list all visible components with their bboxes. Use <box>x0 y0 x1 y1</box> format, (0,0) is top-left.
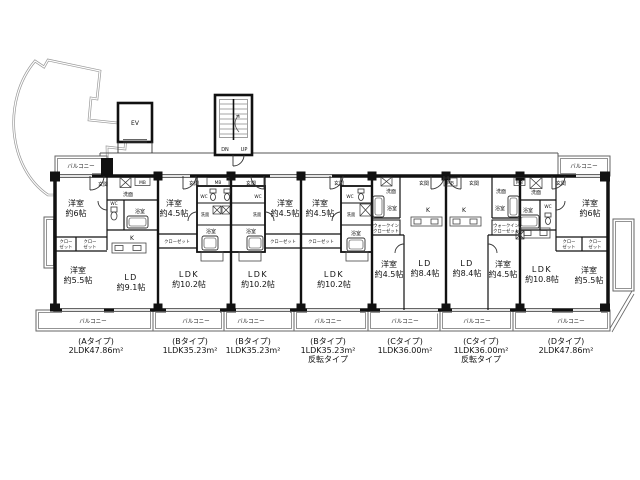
entrance-label: 玄関 <box>246 180 256 187</box>
closet-label: クロー <box>563 239 576 245</box>
closet-label: ゼット <box>60 244 73 251</box>
type-name: (Cタイプ) <box>463 337 499 346</box>
wic-label: ウォークイン <box>493 222 519 229</box>
room-label: 約4.5帖 <box>271 208 300 218</box>
closet-label: クロー <box>589 239 602 245</box>
room-label: LDK <box>248 270 268 279</box>
type-name: (Aタイプ) <box>78 337 114 346</box>
room-label: 約4.5帖 <box>306 208 335 218</box>
room-label: 洋室 <box>68 198 84 208</box>
type-area: 1LDK36.00m² <box>454 346 509 355</box>
wc-label: WC <box>346 194 353 200</box>
room-label: LD <box>418 259 432 268</box>
entrance-label: 玄関 <box>419 180 429 187</box>
closet-label: ゼット <box>84 244 97 251</box>
room-label: 約5.5帖 <box>64 275 93 285</box>
wash-label: 洗面 <box>347 211 356 218</box>
room-label: 洋室 <box>277 198 293 208</box>
entrance-label: 玄関 <box>469 180 479 187</box>
wash-label: 洗面 <box>201 211 210 218</box>
wash-label: 洗面 <box>496 188 506 195</box>
mb-label: MB <box>215 180 222 186</box>
room-label: 約4.5帖 <box>375 269 404 279</box>
entrance-label: 玄関 <box>334 180 344 187</box>
balcony-label: バルコニー <box>570 163 597 170</box>
balcony-label: バルコニー <box>314 318 341 325</box>
bath-label: 浴室 <box>523 207 533 214</box>
type-note: 反転タイプ <box>308 354 348 364</box>
room-label: 約10.2帖 <box>317 279 351 289</box>
elevator: EV <box>118 103 152 153</box>
room-label: 洋室 <box>581 265 597 275</box>
room-label: 約4.5帖 <box>160 208 189 218</box>
room-label: LD <box>124 273 138 282</box>
balcony-label: バルコニー <box>557 318 584 325</box>
wc-label: WC <box>254 194 261 200</box>
mb-label: MB <box>516 180 523 186</box>
wic-label: クローゼット <box>373 228 399 235</box>
type-area: 2LDK47.86m² <box>539 346 594 355</box>
type-name: (Bタイプ) <box>172 337 208 346</box>
closet-label: クロー <box>60 239 73 245</box>
closet-label: ゼット <box>563 244 576 251</box>
type-name: (Bタイプ) <box>235 337 271 346</box>
wic-label: クローゼット <box>493 228 519 235</box>
entrance-label: 玄関 <box>189 180 199 187</box>
staircase: DN UP <box>215 95 252 166</box>
room-label: 約9.1帖 <box>117 282 146 292</box>
stairs-dn-label: DN <box>221 147 229 153</box>
balcony-label: バルコニー <box>182 318 209 325</box>
mb-label: MB <box>447 181 454 187</box>
bath-label: 浴室 <box>351 230 361 237</box>
wc-label: WC <box>200 194 207 200</box>
room-label: LDK <box>324 270 344 279</box>
room-label: 約6帖 <box>65 208 86 218</box>
wc-label: WC <box>110 201 117 207</box>
mb-label: MB <box>139 180 146 186</box>
room-label: 洋室 <box>166 198 182 208</box>
bath-label: 浴室 <box>135 208 145 215</box>
bath-label: 浴室 <box>495 205 505 212</box>
wash-label: 洗面 <box>531 189 541 196</box>
balcony-right-side <box>609 219 634 332</box>
room-label: 約5.5帖 <box>575 275 604 285</box>
wash-label: 洗面 <box>123 191 133 198</box>
bath-label: 浴室 <box>206 228 216 235</box>
type-name: (Dタイプ) <box>548 337 584 346</box>
balcony-label: バルコニー <box>79 318 106 325</box>
wic-label: ウォークイン <box>373 222 399 229</box>
wc-label: WC <box>544 204 551 210</box>
room-label: LD <box>460 259 474 268</box>
closet-label: クロー <box>84 239 97 245</box>
room-label: 洋室 <box>495 259 511 269</box>
type-name: (Cタイプ) <box>387 337 423 346</box>
room-label: LDK <box>179 270 199 279</box>
entrance-label: 玄関 <box>98 181 108 188</box>
room-label: 洋室 <box>582 198 598 208</box>
room-label: LDK <box>532 265 552 274</box>
room-label: 約4.5帖 <box>489 269 518 279</box>
room-label: 約10.2帖 <box>241 279 275 289</box>
unit-type-captions: (Aタイプ) 2LDK47.86m² (Bタイプ) 1LDK35.23m² (B… <box>69 337 594 364</box>
room-label: 約10.8帖 <box>525 274 559 284</box>
floor-plan-page: EV DN UP バルコニー バルコニー <box>0 0 640 480</box>
type-area: 1LDK36.00m² <box>378 346 433 355</box>
type-note: 反転タイプ <box>461 354 501 364</box>
type-area: 1LDK35.23m² <box>301 346 356 355</box>
ev-label: EV <box>131 120 140 127</box>
room-label: 洋室 <box>312 198 328 208</box>
type-area: 2LDK47.86m² <box>69 346 124 355</box>
balcony-label: バルコニー <box>463 318 490 325</box>
entrance-label: 玄関 <box>556 180 566 187</box>
bath-label: 浴室 <box>246 228 256 235</box>
room-label: 約6帖 <box>579 208 600 218</box>
room-label: 洋室 <box>381 259 397 269</box>
room-label: 約8.4帖 <box>453 268 482 278</box>
balcony-label: バルコニー <box>237 318 264 325</box>
type-area: 1LDK35.23m² <box>226 346 281 355</box>
wash-label: 洗面 <box>386 188 396 195</box>
closet-label: クローゼット <box>308 238 334 245</box>
room-label: 約8.4帖 <box>411 268 440 278</box>
type-area: 1LDK35.23m² <box>163 346 218 355</box>
bath-label: 浴室 <box>387 205 397 212</box>
closet-label: クローゼット <box>164 238 190 245</box>
floor-plan-drawing: EV DN UP バルコニー バルコニー <box>0 0 640 480</box>
room-label: 約10.2帖 <box>172 279 206 289</box>
wash-label: 洗面 <box>253 211 262 218</box>
closet-label: クローゼット <box>270 238 296 245</box>
type-name: (Bタイプ) <box>310 337 346 346</box>
balcony-label: バルコニー <box>67 163 94 170</box>
balcony-label: バルコニー <box>391 318 418 325</box>
stairs-up-label: UP <box>241 147 248 153</box>
room-label: 洋室 <box>70 265 86 275</box>
closet-label: ゼット <box>589 244 602 251</box>
